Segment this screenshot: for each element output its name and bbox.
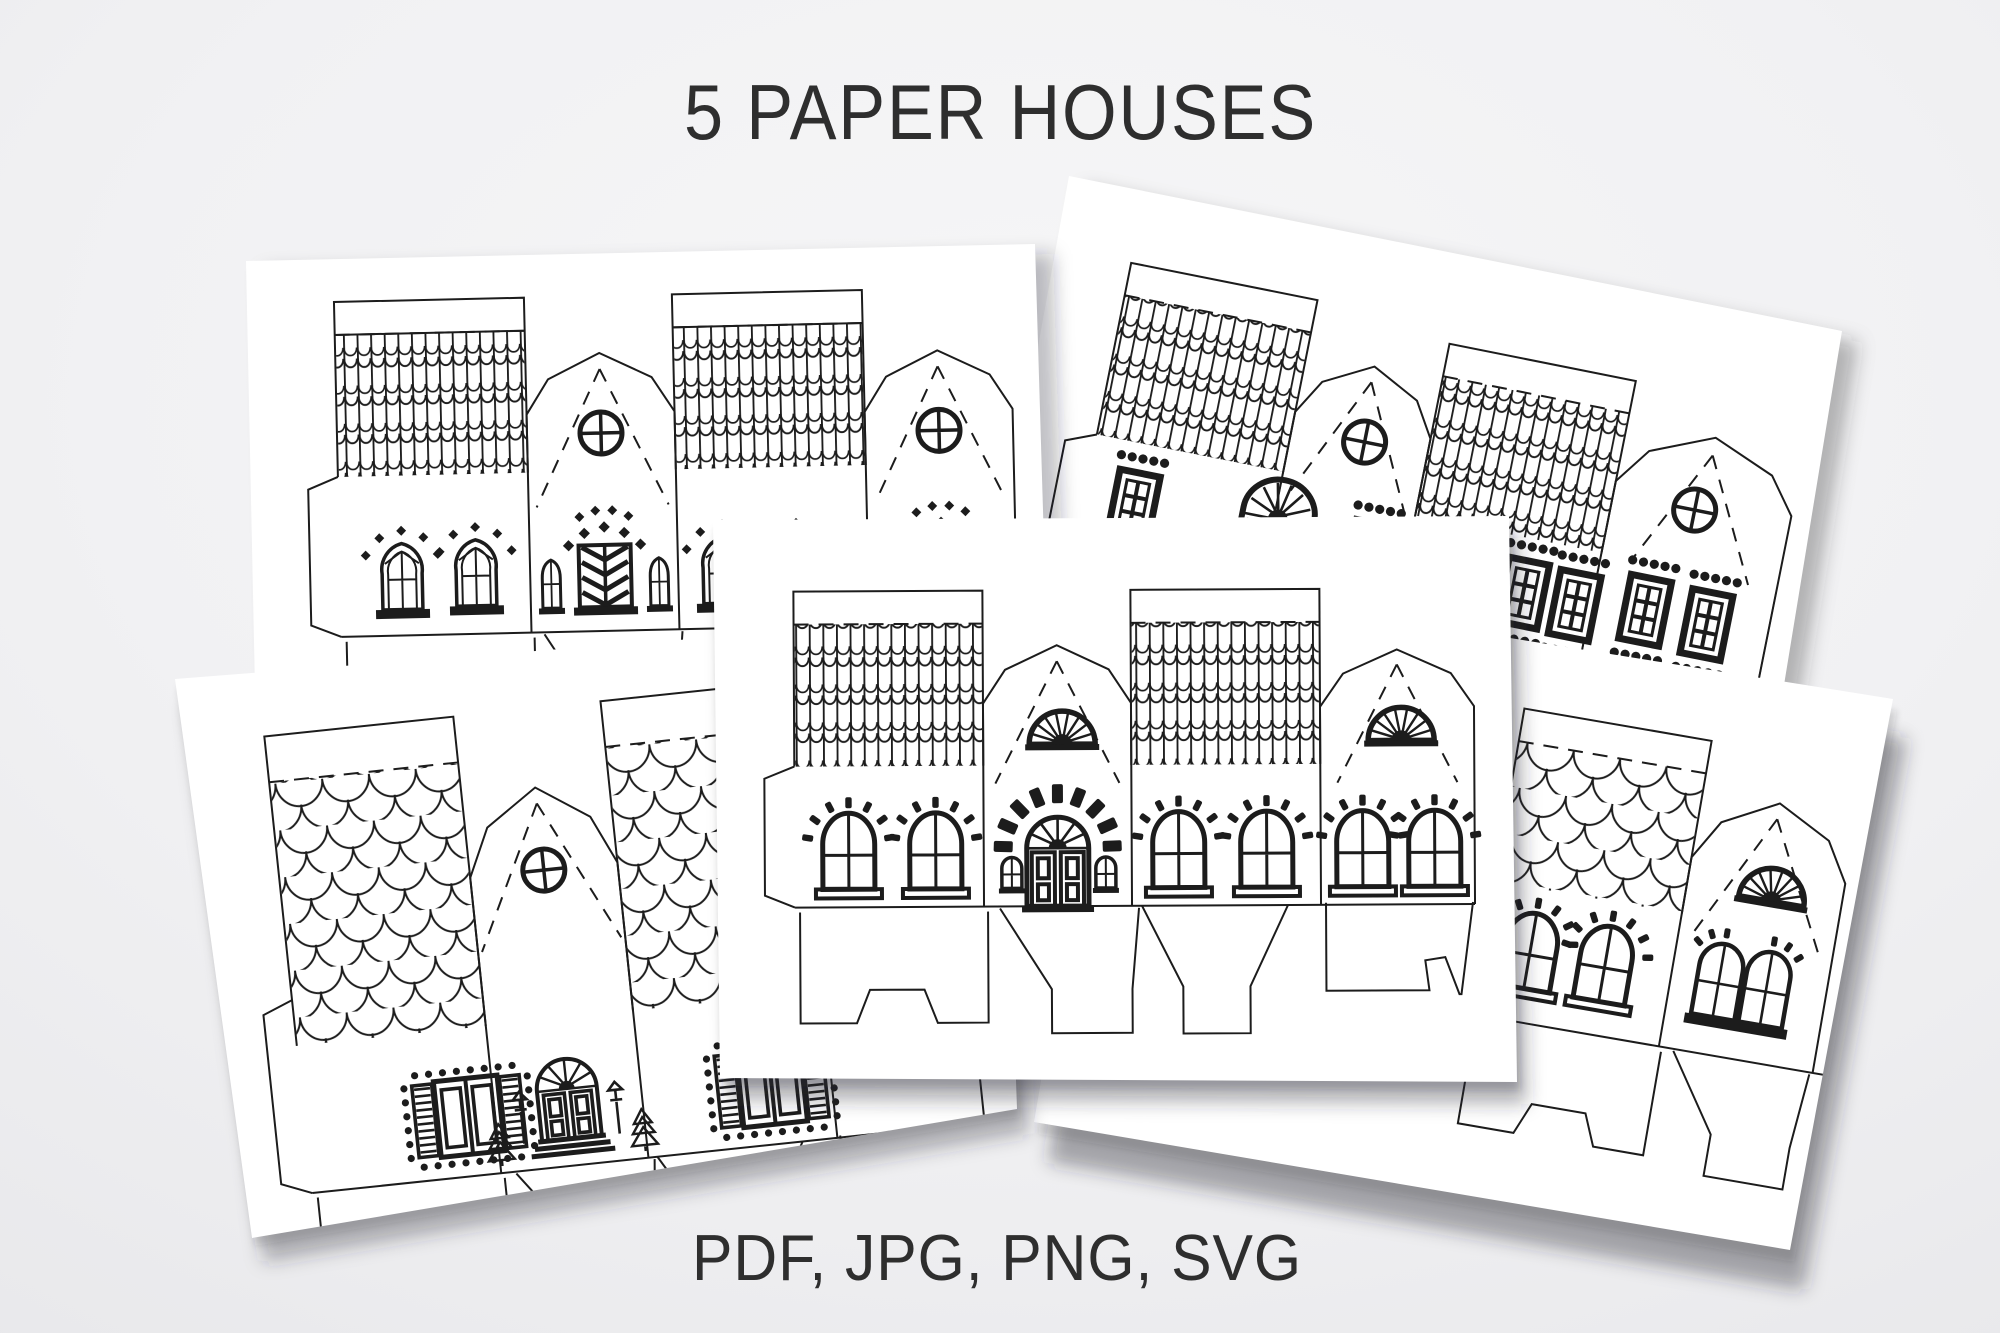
svg-text:PDF, JPG, PNG, SVG: PDF, JPG, PNG, SVG (692, 1221, 1302, 1294)
svg-text:5 PAPER HOUSES: 5 PAPER HOUSES (684, 68, 1317, 156)
